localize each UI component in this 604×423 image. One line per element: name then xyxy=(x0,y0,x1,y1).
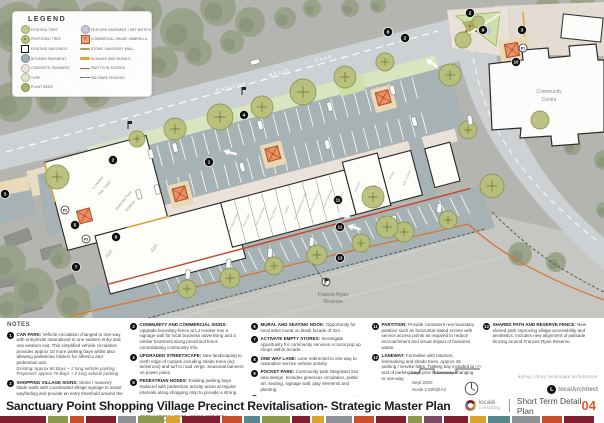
note-extra-line: Proposed: approx 70 Bays + 2 long vehicl… xyxy=(17,371,124,377)
strip-segment xyxy=(354,416,374,423)
swatch-shape: ✕ xyxy=(81,35,90,44)
note-text: COMMUNITY AND COMMERCIAL SIGNS: Upgrade … xyxy=(140,322,245,351)
strip-segment xyxy=(424,416,442,423)
sheet-title: Sanctuary Point Shopping Village Precinc… xyxy=(6,399,451,413)
swatch-shape xyxy=(21,73,30,82)
svg-text:0: 0 xyxy=(409,365,411,369)
legend-swatch-circle xyxy=(19,73,31,82)
legend-title: LEGEND xyxy=(28,16,151,23)
note-marker-3: 3 xyxy=(517,25,526,34)
note-marker-2: 2 xyxy=(465,8,474,17)
commercial-umbrella-icon xyxy=(172,186,188,202)
canopy-shadow xyxy=(223,38,235,50)
strip-segment xyxy=(312,416,324,423)
legend-label: PROPOSED TREE xyxy=(31,37,61,41)
legend-item: STONE / MASONRY WALL xyxy=(79,44,151,54)
architect-logo-icon: L xyxy=(547,385,556,394)
proposed-tree xyxy=(220,268,240,288)
note-number-badge: 2 xyxy=(7,380,14,387)
svg-text:11: 11 xyxy=(336,198,341,203)
svg-text:P3: P3 xyxy=(84,237,88,241)
commercial-umbrella-icon xyxy=(504,42,519,57)
canopy-shadow xyxy=(188,48,202,62)
swatch-shape xyxy=(21,25,30,34)
note-marker-1: 1 xyxy=(204,157,213,166)
strip-segment xyxy=(444,416,468,423)
scale-bar: 0 5 10 20m xyxy=(406,364,484,378)
notes-column: 3COMMUNITY AND COMMERCIAL SIGNS: Upgrade… xyxy=(130,322,244,396)
parked-car xyxy=(267,248,272,258)
strip-segment xyxy=(326,416,352,423)
photo-marker: P3 xyxy=(82,235,90,243)
note-item: 8ONE WAY LANE: Lane redirected to one wa… xyxy=(251,356,365,367)
canopy-shadow xyxy=(372,3,380,11)
note-text: MURAL AND SEATING NOOK: Opportunity for … xyxy=(261,322,366,333)
legend-label: BITUMEN PAVEMENT xyxy=(31,57,67,61)
legend-label: EXISTING BUILDINGS xyxy=(31,47,68,51)
legend-swatch-circle-dot xyxy=(19,35,31,44)
canopy-shadow xyxy=(166,23,188,45)
proposed-tree xyxy=(45,165,69,189)
strip-segment xyxy=(470,416,486,423)
note-marker-7: 7 xyxy=(71,262,80,271)
note-text: PARTITION: Provide consistent rear bound… xyxy=(382,322,477,351)
strip-segment xyxy=(542,416,562,423)
legend-label: PARTITION SCREEN xyxy=(91,66,125,70)
note-marker-11: 11 xyxy=(333,195,342,204)
strip-segment xyxy=(512,416,540,423)
svg-text:P2: P2 xyxy=(63,208,67,212)
building-ne xyxy=(561,14,603,42)
legend-panel: LEGEND EXISTING TREEPROPOSED TREEEXISTIN… xyxy=(12,11,152,97)
legend-swatch-circle xyxy=(19,64,31,73)
svg-text:13: 13 xyxy=(338,256,343,261)
strip-segment xyxy=(0,416,46,423)
svg-text:2: 2 xyxy=(469,11,472,17)
svg-text:7: 7 xyxy=(75,265,78,271)
strip-segment xyxy=(488,416,510,423)
strip-segment xyxy=(222,416,242,423)
svg-text:10: 10 xyxy=(514,60,519,65)
legend-item: PLANT BEDS xyxy=(19,83,79,93)
strip-segment xyxy=(166,416,180,423)
note-number-badge: 3 xyxy=(130,323,137,330)
map-label: Francis Ryan xyxy=(318,292,349,298)
legend-label: CONCRETE PAVEMENT xyxy=(31,66,70,70)
landscape-credit: ayling | drury landscape architecture xyxy=(518,374,598,379)
legend-label: FEATURE PAVEMENT / ART MOTIFS xyxy=(91,28,151,32)
swatch-shape xyxy=(80,48,90,51)
map-label: Reserve xyxy=(323,299,342,305)
svg-text:4: 4 xyxy=(243,113,246,119)
proposed-tree xyxy=(439,211,457,229)
svg-text:5: 5 xyxy=(419,365,421,369)
legend-item: PALISADE FENCING xyxy=(79,73,151,83)
note-text: CAR PARK: Vehicle circulation changed to… xyxy=(17,332,124,378)
consultant-sub-text: consulting xyxy=(479,406,501,411)
legend-item: PARTITION SCREEN xyxy=(79,63,151,73)
note-text: POCKET PARK: Community park integrated i… xyxy=(261,369,366,392)
strip-segment xyxy=(292,416,310,423)
canopy-shadow xyxy=(205,3,223,21)
legend-item: PROPOSED TREE xyxy=(19,35,79,45)
consultant-name-text: localé xyxy=(479,399,496,406)
note-marker-12: 12 xyxy=(335,222,344,231)
map-label: Centre xyxy=(541,97,556,103)
note-number-badge: 12 xyxy=(372,354,379,361)
strip-segment xyxy=(182,416,220,423)
proposed-tree xyxy=(480,174,504,198)
strip-segment xyxy=(244,416,260,423)
legend-label: COMMERCIAL SHADE UMBRELLA xyxy=(91,37,147,41)
play-element-dot xyxy=(469,25,471,27)
proposed-tree xyxy=(352,234,370,252)
strip-segment xyxy=(48,416,68,423)
proposed-tree xyxy=(307,245,327,265)
parked-car xyxy=(226,259,231,269)
svg-text:20m: 20m xyxy=(475,365,482,369)
legend-swatch-umbrella: ✕ xyxy=(79,35,91,44)
plan-type-label: Short Term Detail Plan xyxy=(517,396,582,416)
strip-segment xyxy=(138,416,164,423)
proposed-tree xyxy=(376,216,398,238)
note-marker-2: 2 xyxy=(400,33,409,42)
footer-divider xyxy=(509,399,510,412)
legend-swatch-bar xyxy=(79,48,91,51)
note-item: 13SHARED PATH AND RESERVE FENCE: New sha… xyxy=(483,322,599,345)
canopy-shadow xyxy=(239,18,254,33)
proposed-tree xyxy=(178,280,196,298)
note-text: SHARED PATH AND RESERVE FENCE: New share… xyxy=(493,322,600,345)
legend-label: PLANT BEDS xyxy=(31,85,53,89)
plan-date: Sept 2020 xyxy=(412,379,446,386)
legend-swatch-dashed xyxy=(79,77,91,78)
proposed-tree xyxy=(265,257,283,275)
legend-label: SIGNAGE AND MURALS xyxy=(91,57,131,61)
legend-swatch-square-outline xyxy=(19,45,31,53)
note-item: 11PARTITION: Provide consistent rear bou… xyxy=(372,322,476,351)
strip-segment xyxy=(86,416,116,423)
note-item: 6MURAL AND SEATING NOOK: Opportunity for… xyxy=(251,322,365,333)
legend-swatch-line xyxy=(79,68,91,69)
commercial-umbrella-icon xyxy=(265,146,281,162)
swatch-shape xyxy=(81,25,90,34)
swatch-shape xyxy=(21,83,30,92)
note-number-badge: 6 xyxy=(251,323,258,330)
svg-text:9: 9 xyxy=(482,28,485,34)
svg-text:10: 10 xyxy=(432,365,436,369)
architect-logo-name: localArchitect xyxy=(558,387,598,393)
note-number-badge: 7 xyxy=(251,336,258,343)
consultant-logo: localé consulting xyxy=(465,400,501,412)
note-marker-2: 2 xyxy=(108,155,117,164)
note-marker-10: 10 xyxy=(511,57,520,66)
proposed-tree xyxy=(207,104,233,130)
proposed-tree xyxy=(251,96,273,118)
strip-segment xyxy=(262,416,290,423)
canopy-shadow xyxy=(0,302,14,316)
consultant-logo-icon xyxy=(465,400,476,411)
canopy-shadow xyxy=(277,15,288,26)
legend-column-1: EXISTING TREEPROPOSED TREEEXISTING BUILD… xyxy=(19,25,79,92)
notes-header: NOTES xyxy=(7,322,123,328)
page-number: 04 xyxy=(582,398,596,413)
swatch-shape xyxy=(21,64,30,73)
swatch-shape xyxy=(21,45,29,53)
info-block: 0 5 10 20m Sept 2020 Scale 1:500@A3 ayli… xyxy=(398,352,604,396)
legend-label: STONE / MASONRY WALL xyxy=(91,47,134,51)
north-arrow-icon xyxy=(464,381,479,396)
legend-swatch-circle xyxy=(19,83,31,92)
note-text: ACTIVATE EMPTY STORES: Investigate oppor… xyxy=(261,336,366,353)
architect-logo: L localArchitect xyxy=(547,385,598,394)
proposed-tree-dot xyxy=(24,38,26,40)
proposed-tree xyxy=(439,64,461,86)
proposed-tree xyxy=(290,79,316,105)
legend-label: PALISADE FENCING xyxy=(91,76,125,80)
strip-segment xyxy=(376,416,406,423)
legend-item: EXISTING TREE xyxy=(19,25,79,35)
svg-text:5: 5 xyxy=(74,223,77,229)
legend-item: TURF xyxy=(19,73,79,83)
swatch-shape xyxy=(21,35,30,44)
photo-marker: P2 xyxy=(61,206,69,214)
svg-text:1: 1 xyxy=(208,160,211,166)
shade-umbrellas xyxy=(504,42,519,57)
footer-bar: Sanctuary Point Shopping Village Precinc… xyxy=(0,396,604,415)
note-number-badge: 11 xyxy=(372,323,379,330)
strip-segment xyxy=(70,416,84,423)
svg-text:8: 8 xyxy=(387,30,390,36)
note-number-badge: 4 xyxy=(130,354,137,361)
existing-tree xyxy=(455,32,471,48)
canopy-shadow xyxy=(61,297,79,315)
legend-item: BITUMEN PAVEMENT xyxy=(19,54,79,64)
note-number-badge: 8 xyxy=(251,356,258,363)
legend-swatch-circle xyxy=(19,54,31,63)
canopy-shadow xyxy=(52,255,63,266)
svg-text:12: 12 xyxy=(338,225,343,230)
canopy-shadow xyxy=(150,57,166,73)
proposed-tree xyxy=(164,118,186,140)
canopy-shadow xyxy=(343,5,352,14)
note-marker-4: 4 xyxy=(239,110,248,119)
note-item: 9POCKET PARK: Community park integrated … xyxy=(251,369,365,392)
plan-sheet: LJ HookerReal EstateSanctuary PointSeafo… xyxy=(0,0,604,423)
note-marker-5: 5 xyxy=(70,220,79,229)
commercial-umbrella-icon xyxy=(77,208,93,224)
legend-item: SIGNAGE AND MURALS xyxy=(79,54,151,64)
proposed-tree xyxy=(334,66,356,88)
note-number-badge: 13 xyxy=(483,323,490,330)
note-item: 4UPGRADED STREETSCAPE: New landscaping t… xyxy=(130,353,244,376)
play-element-dot xyxy=(465,30,467,32)
note-text: ONE WAY LANE: Lane redirected to one way… xyxy=(261,356,366,367)
commercial-umbrella-icon xyxy=(375,90,391,106)
date-scale-block: Sept 2020 Scale 1:500@A3 xyxy=(412,379,446,393)
note-item: 7ACTIVATE EMPTY STORES: Investigate oppo… xyxy=(251,336,365,353)
svg-text:3: 3 xyxy=(521,28,524,34)
svg-text:2: 2 xyxy=(112,158,115,164)
legend-swatch-circle xyxy=(79,25,91,34)
parked-car xyxy=(185,270,190,280)
note-marker-13: 13 xyxy=(335,253,344,262)
note-item: 1CAR PARK: Vehicle circulation changed t… xyxy=(7,332,123,378)
proposed-tree xyxy=(129,131,145,147)
svg-text:6: 6 xyxy=(115,235,118,241)
legend-label: EXISTING TREE xyxy=(31,28,58,32)
svg-text:3: 3 xyxy=(4,192,7,198)
notes-column: NOTES1CAR PARK: Vehicle circulation chan… xyxy=(7,322,123,396)
swatch-shape xyxy=(80,57,90,60)
swatch-shape xyxy=(21,54,30,63)
legend-swatch-bar xyxy=(79,57,91,60)
plan-scale: Scale 1:500@A3 xyxy=(412,386,446,393)
map-label: Community xyxy=(536,89,562,95)
note-marker-9: 9 xyxy=(478,25,487,34)
note-number-badge: 5 xyxy=(130,379,137,386)
proposed-tree xyxy=(362,186,384,208)
svg-text:2: 2 xyxy=(404,36,407,42)
note-item: 3COMMUNITY AND COMMERCIAL SIGNS: Upgrade… xyxy=(130,322,244,351)
legend-item: ✕COMMERCIAL SHADE UMBRELLA xyxy=(79,35,151,45)
note-marker-8: 8 xyxy=(383,27,392,36)
swatch-shape xyxy=(80,77,90,78)
footer-colour-strip xyxy=(0,416,604,423)
note-marker-3: 3 xyxy=(0,189,9,198)
legend-item: CONCRETE PAVEMENT xyxy=(19,63,79,73)
notes-column: 6MURAL AND SEATING NOOK: Opportunity for… xyxy=(251,322,365,396)
legend-swatch-circle xyxy=(19,25,31,34)
note-marker-6: 6 xyxy=(111,232,120,241)
legend-column-2: FEATURE PAVEMENT / ART MOTIFS✕COMMERCIAL… xyxy=(79,25,151,92)
photo-marker: P1 xyxy=(519,44,527,52)
canopy-shadow xyxy=(305,5,314,14)
existing-tree xyxy=(531,111,549,129)
parked-car xyxy=(437,203,442,213)
note-text: UPGRADED STREETSCAPE: New landscaping to… xyxy=(140,353,245,376)
svg-text:P1: P1 xyxy=(521,46,525,50)
note-number-badge: 1 xyxy=(7,332,14,339)
strip-segment xyxy=(564,416,594,423)
legend-item: FEATURE PAVEMENT / ART MOTIFS xyxy=(79,25,151,35)
strip-segment xyxy=(118,416,136,423)
legend-label: TURF xyxy=(31,76,40,80)
proposed-tree xyxy=(376,53,394,71)
legend-item: EXISTING BUILDINGS xyxy=(19,44,79,54)
consultant-name: localé consulting xyxy=(479,400,501,412)
swatch-shape xyxy=(80,68,90,69)
note-number-badge: 9 xyxy=(251,370,258,377)
strip-segment xyxy=(408,416,422,423)
